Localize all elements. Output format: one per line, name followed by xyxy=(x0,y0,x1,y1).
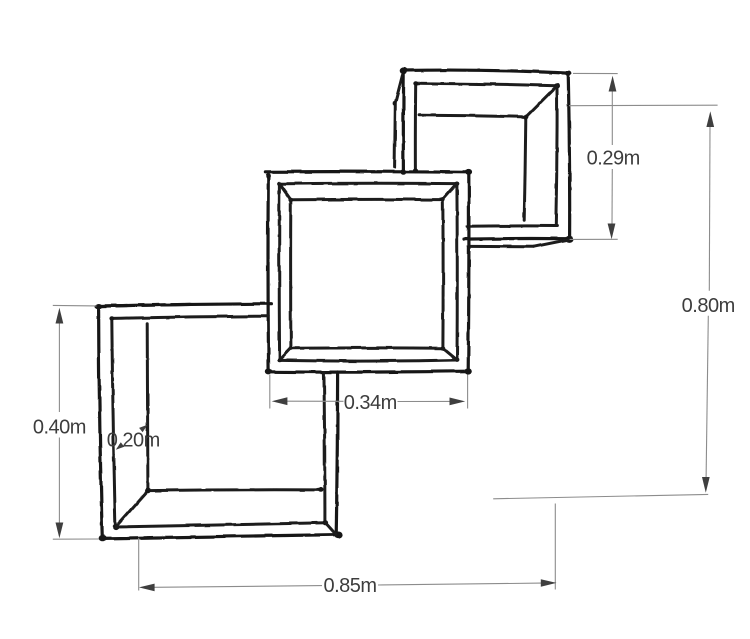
svg-text:0.20m: 0.20m xyxy=(107,430,160,452)
svg-text:0.34m: 0.34m xyxy=(344,392,397,414)
svg-text:0.29m: 0.29m xyxy=(587,148,640,170)
svg-text:0.40m: 0.40m xyxy=(33,416,86,438)
svg-text:0.80m: 0.80m xyxy=(682,295,735,317)
svg-text:0.85m: 0.85m xyxy=(323,575,376,597)
